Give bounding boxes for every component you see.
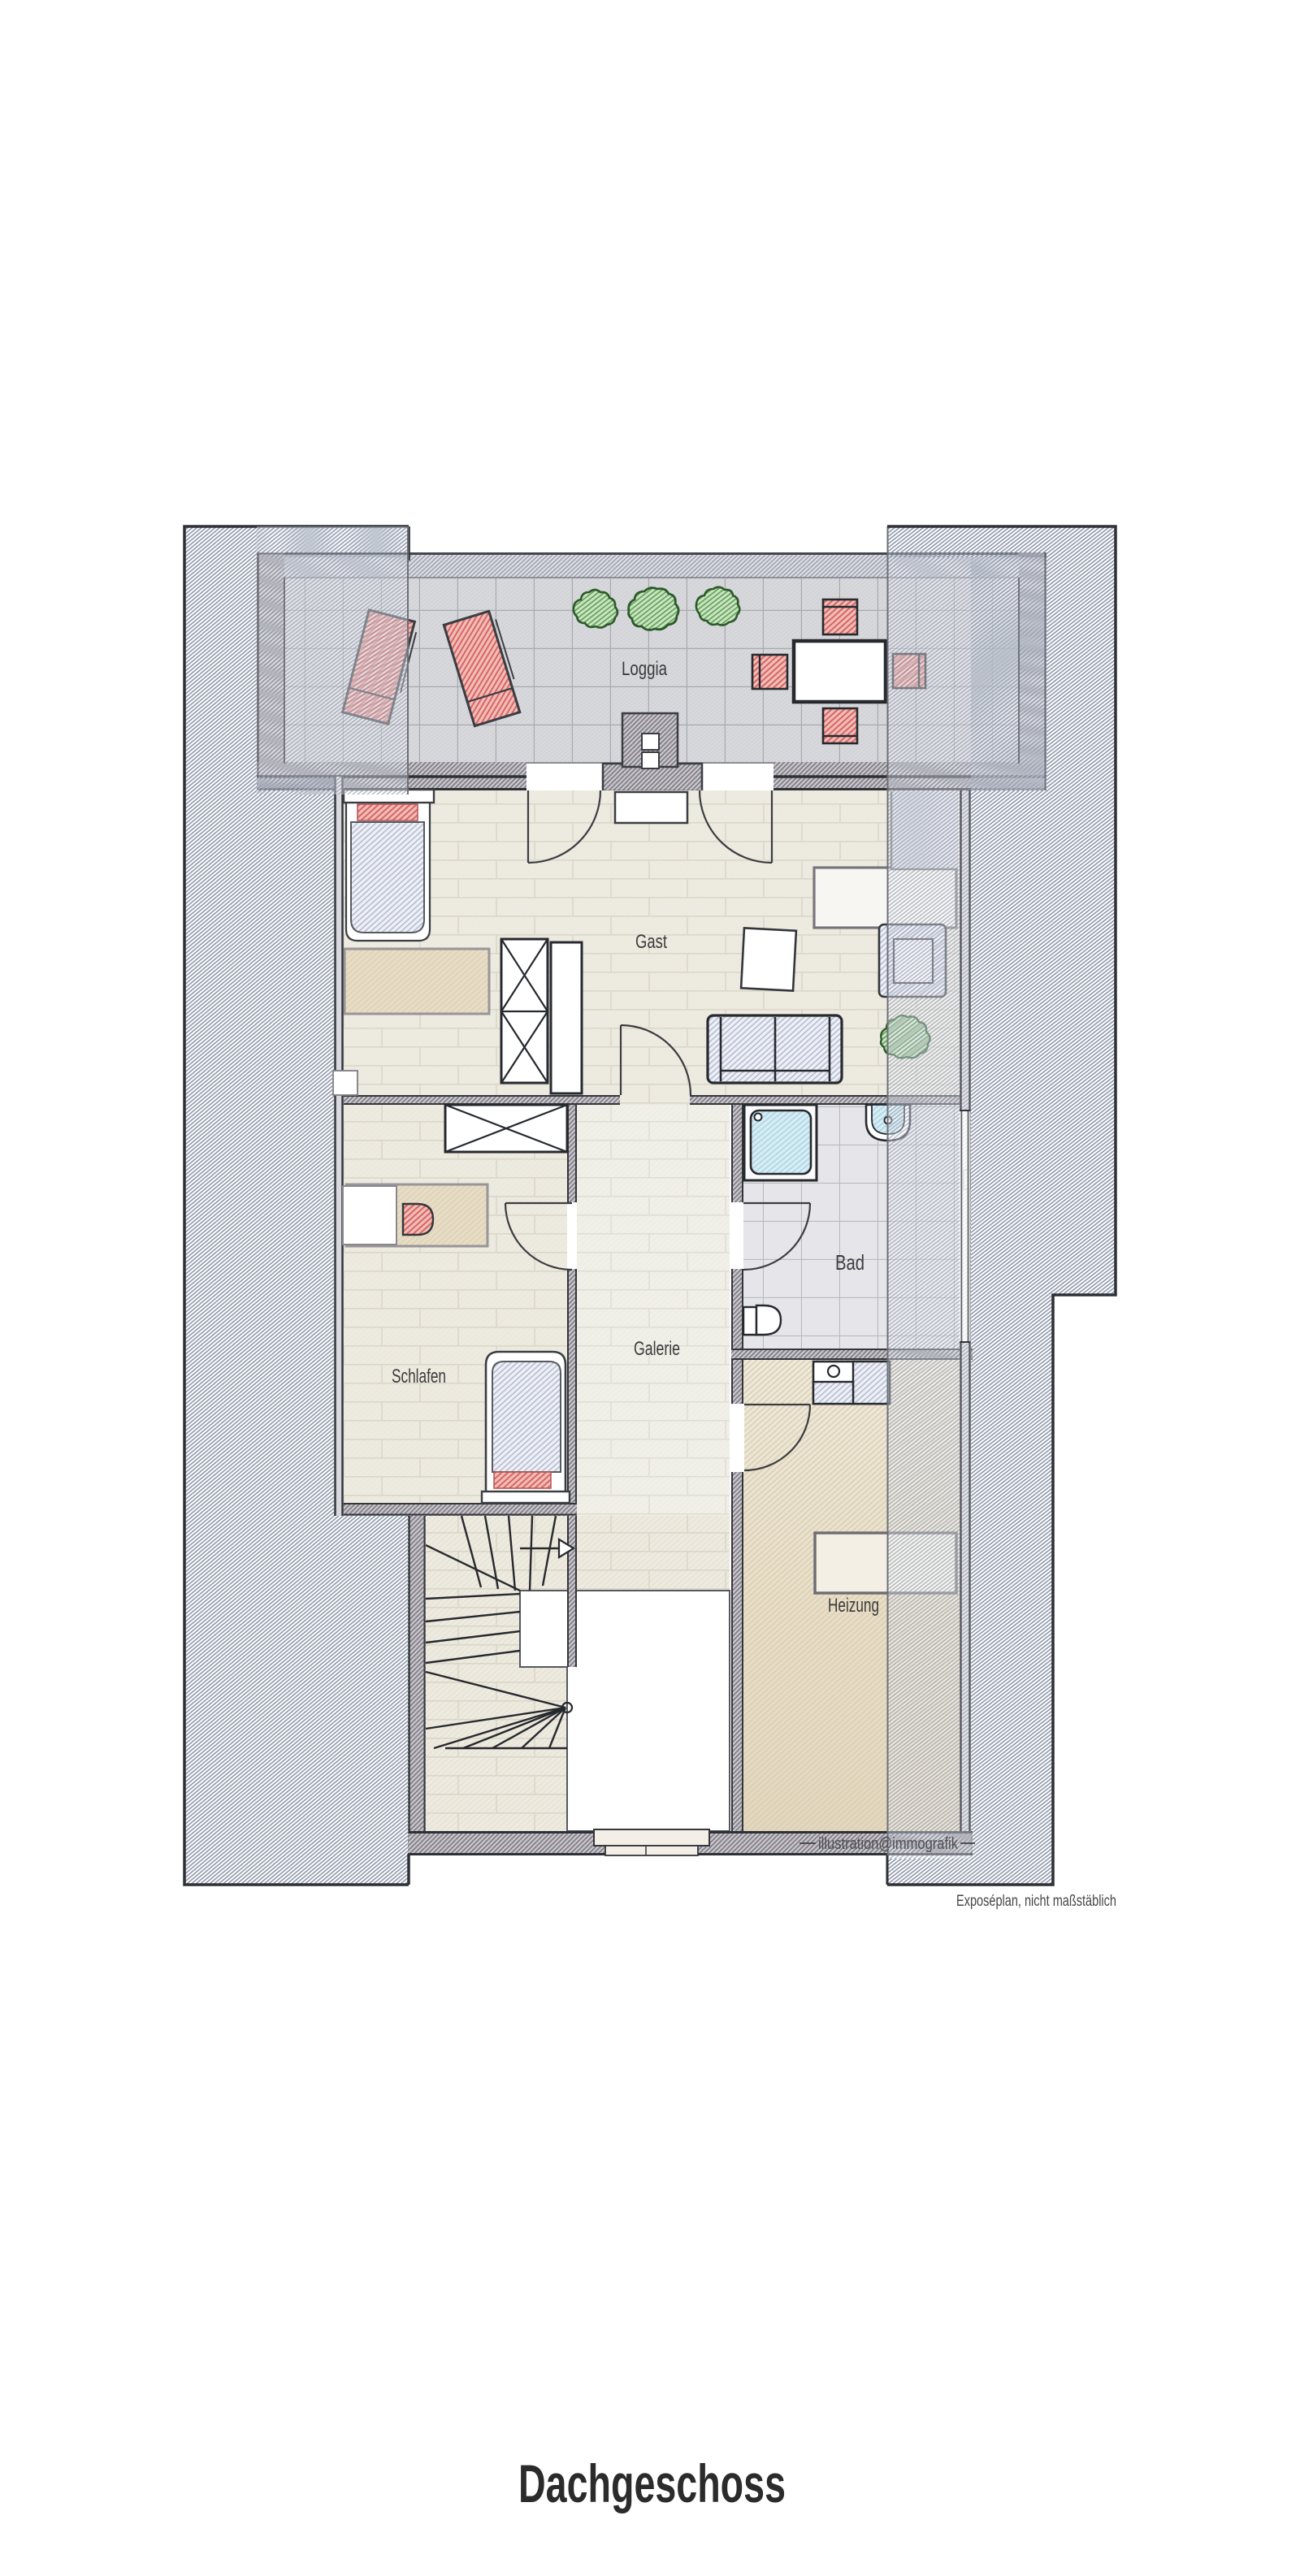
svg-text:Schlafen: Schlafen — [392, 1366, 446, 1388]
svg-text:Heizung: Heizung — [828, 1595, 879, 1617]
svg-text:illustration@immografik: illustration@immografik — [818, 1835, 959, 1853]
svg-text:Loggia: Loggia — [622, 658, 668, 680]
svg-text:Exposéplan, nicht maßstäblich: Exposéplan, nicht maßstäblich — [956, 1893, 1116, 1910]
svg-text:Galerie: Galerie — [634, 1338, 680, 1360]
svg-text:Dachgeschoss: Dachgeschoss — [518, 2453, 786, 2513]
svg-text:Gast: Gast — [635, 931, 667, 953]
svg-text:Bad: Bad — [835, 1250, 864, 1275]
